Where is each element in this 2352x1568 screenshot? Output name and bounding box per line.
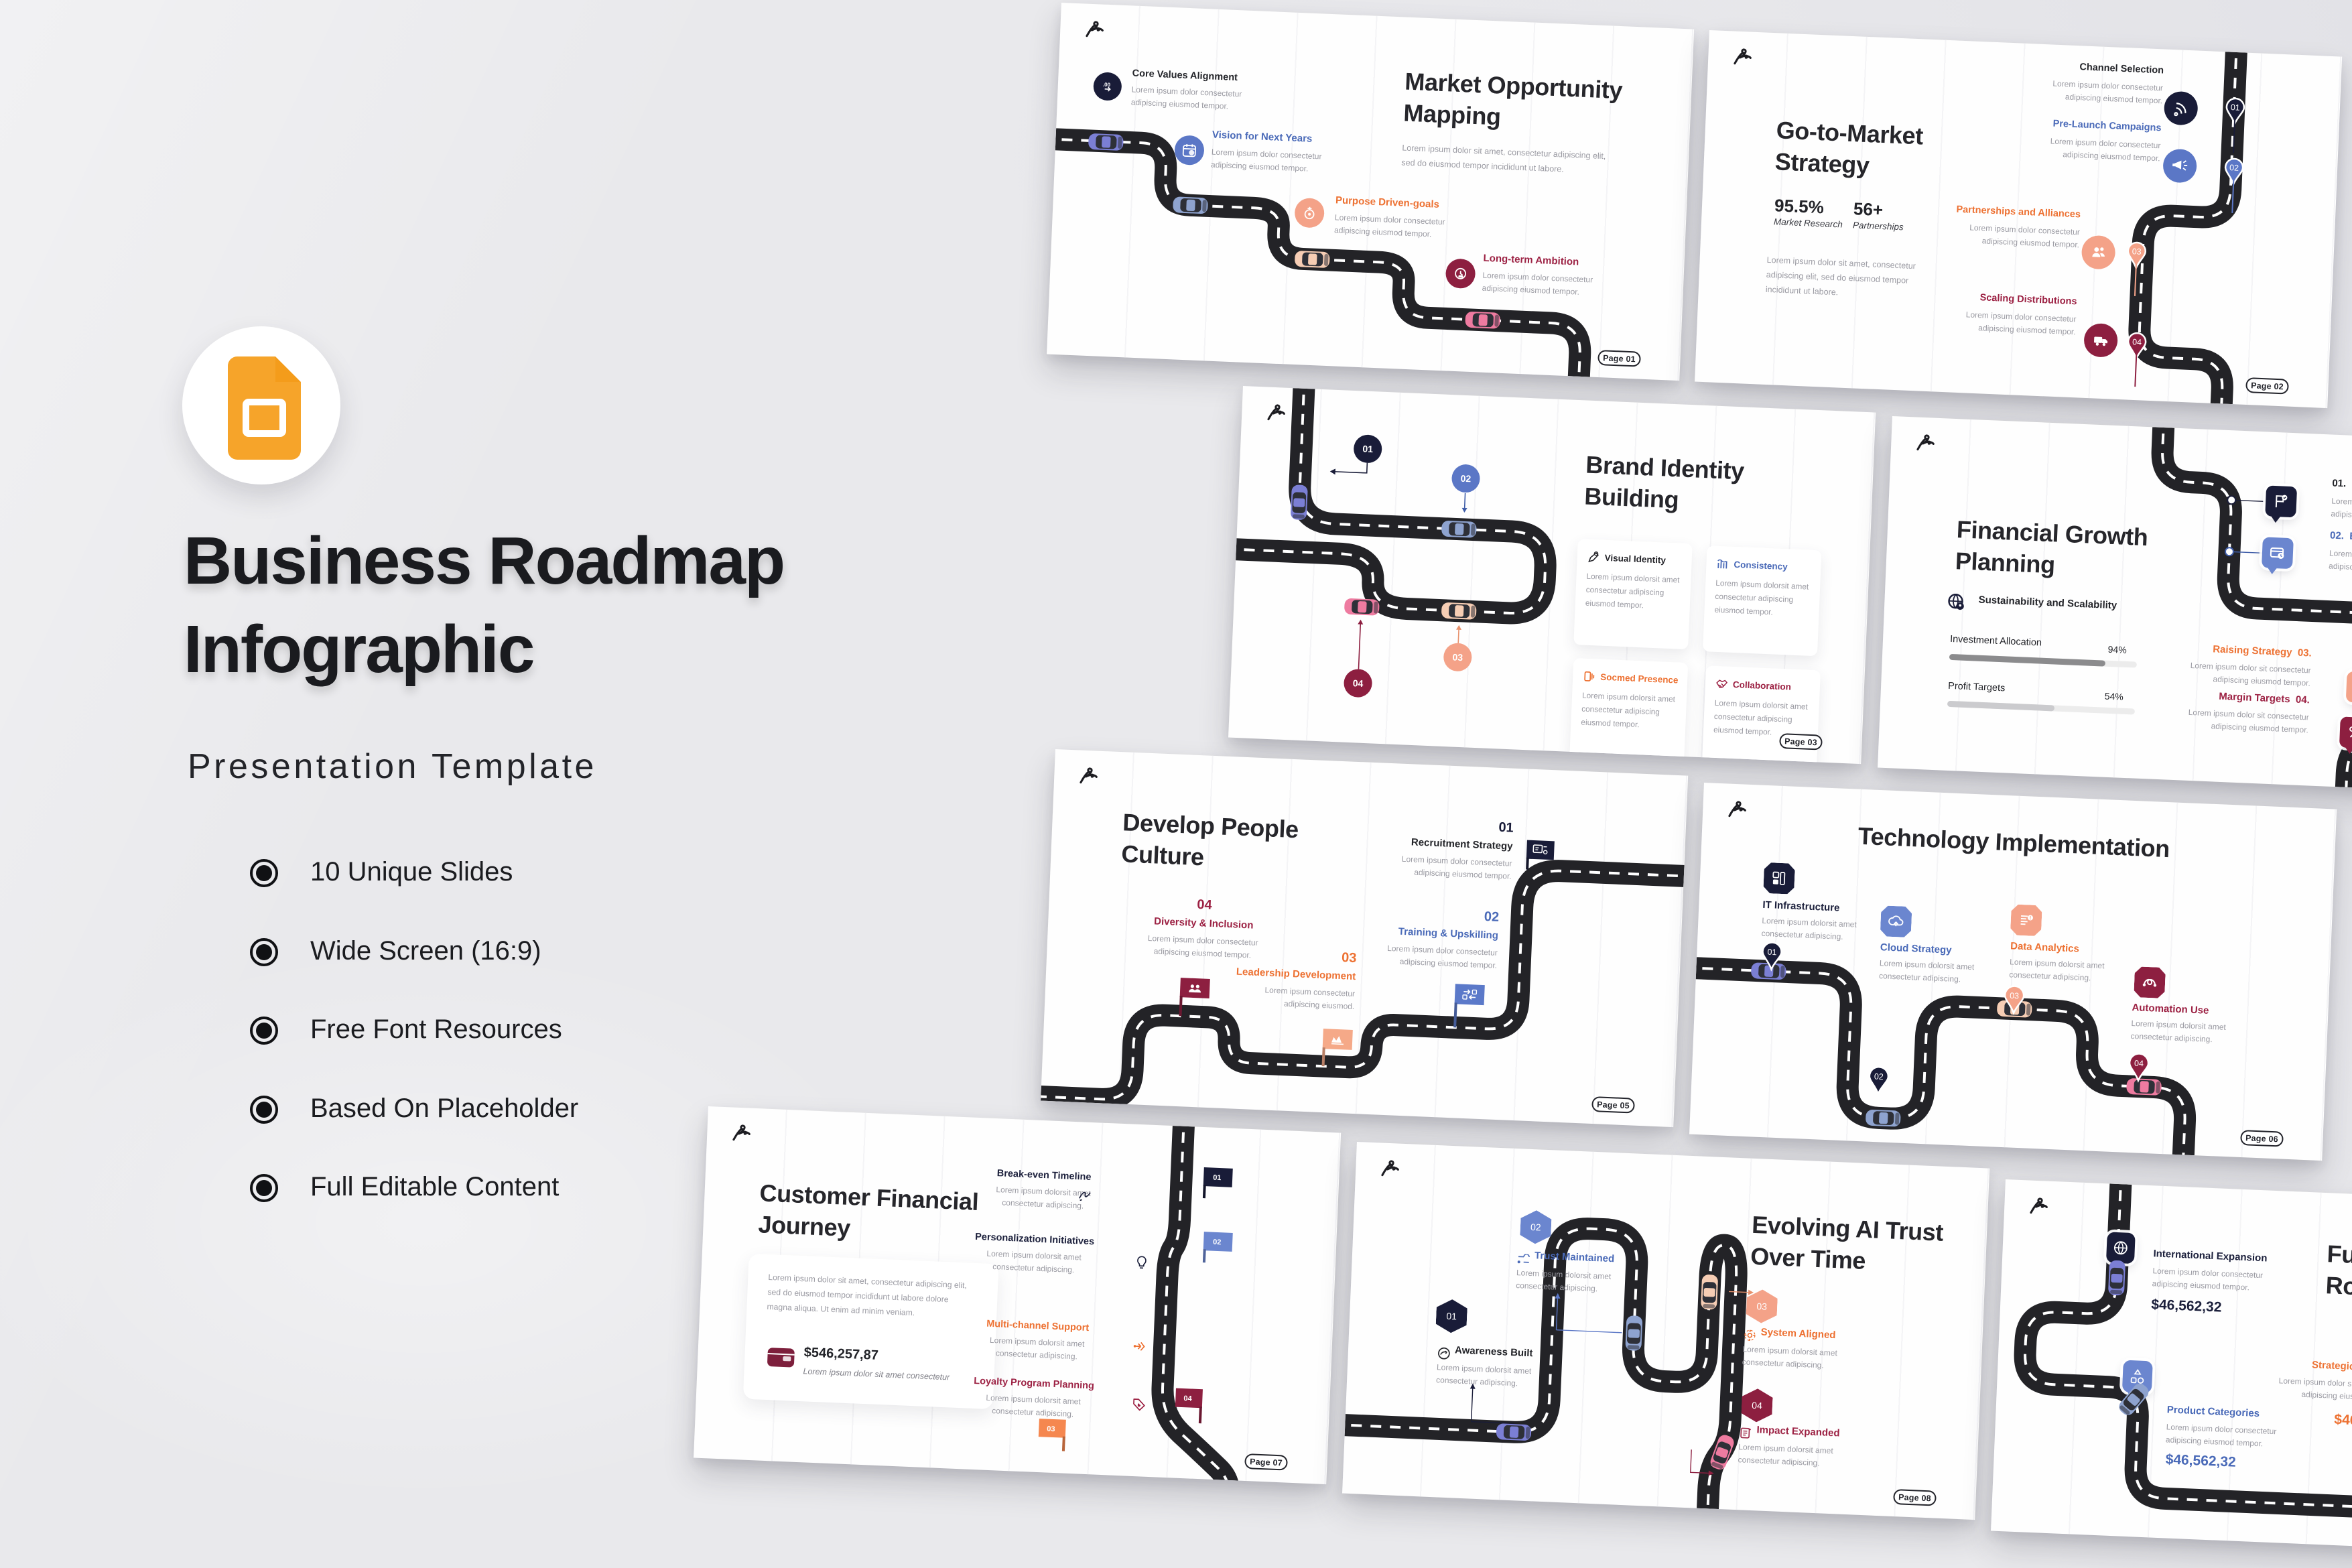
- svg-text:03: 03: [1047, 1425, 1055, 1433]
- svg-text:01: 01: [1767, 948, 1777, 958]
- svg-text:02: 02: [1212, 1238, 1221, 1247]
- svg-text:04: 04: [2134, 1059, 2144, 1069]
- svg-text:04: 04: [1183, 1394, 1193, 1403]
- svg-text:03: 03: [2010, 991, 2020, 1001]
- svg-text:01: 01: [1212, 1174, 1221, 1183]
- svg-text:02: 02: [1874, 1072, 1884, 1082]
- svg-text:!: !: [2029, 915, 2031, 921]
- svg-text:.00: .00: [1103, 82, 1111, 88]
